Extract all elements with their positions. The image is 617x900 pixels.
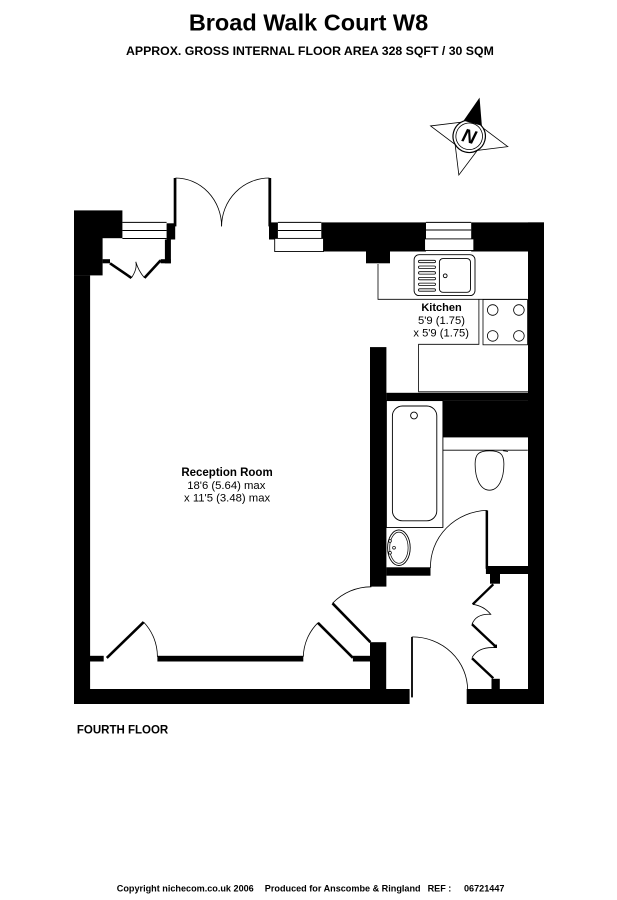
svg-text:18'6 (5.64) max: 18'6 (5.64) max: [187, 480, 265, 492]
svg-text:REF : 06721447: REF : 06721447: [428, 883, 505, 893]
svg-text:APPROX. GROSS INTERNAL FLOOR A: APPROX. GROSS INTERNAL FLOOR AREA 328 SQ…: [126, 44, 494, 58]
svg-text:Kitchen: Kitchen: [421, 302, 462, 314]
svg-text:Reception Room: Reception Room: [181, 467, 272, 479]
svg-text:Copyright nichecom.co.uk 2006: Copyright nichecom.co.uk 2006: [117, 883, 254, 893]
svg-text:x 5'9 (1.75): x 5'9 (1.75): [413, 327, 469, 339]
svg-text:Broad Walk Court W8: Broad Walk Court W8: [189, 10, 428, 36]
svg-text:Produced for Anscombe & Ringla: Produced for Anscombe & Ringland: [265, 883, 421, 893]
svg-text:x 11'5 (3.48) max: x 11'5 (3.48) max: [184, 493, 270, 505]
svg-text:FOURTH FLOOR: FOURTH FLOOR: [77, 725, 169, 737]
svg-text:5'9 (1.75): 5'9 (1.75): [418, 315, 465, 327]
